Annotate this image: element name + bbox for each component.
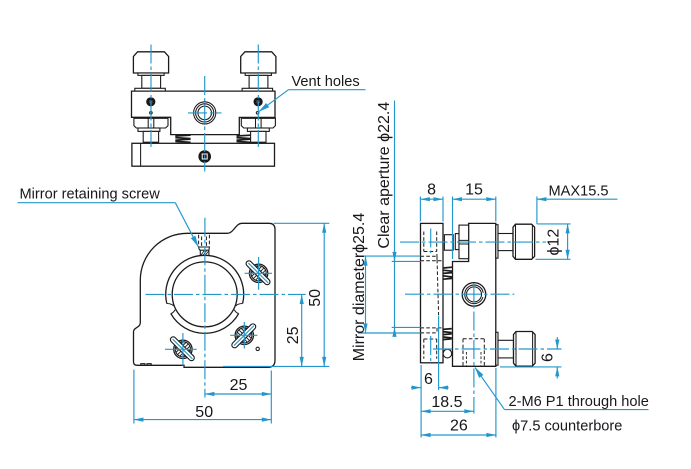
svg-text:25: 25 <box>230 377 248 394</box>
svg-text:8: 8 <box>427 182 436 199</box>
svg-text:26: 26 <box>450 418 468 435</box>
svg-text:MAX15.5: MAX15.5 <box>549 184 609 200</box>
svg-text:6: 6 <box>539 353 556 362</box>
svg-text:6: 6 <box>424 371 433 388</box>
svg-text:Mirror retaining screw: Mirror retaining screw <box>20 186 161 202</box>
svg-text:50: 50 <box>195 404 213 421</box>
svg-text:ϕ12: ϕ12 <box>546 229 563 256</box>
svg-text:Mirror diameterϕ25.4: Mirror diameterϕ25.4 <box>351 213 368 362</box>
svg-text:ϕ7.5 counterbore: ϕ7.5 counterbore <box>512 419 622 435</box>
svg-text:15: 15 <box>465 182 483 199</box>
svg-text:Clear aperture ϕ22.4: Clear aperture ϕ22.4 <box>376 102 393 249</box>
svg-text:2-M6 P1 through hole: 2-M6 P1 through hole <box>509 394 649 410</box>
svg-text:50: 50 <box>307 289 324 307</box>
svg-text:Vent holes: Vent holes <box>292 74 360 90</box>
svg-text:25: 25 <box>285 326 302 344</box>
svg-text:18.5: 18.5 <box>431 394 462 411</box>
